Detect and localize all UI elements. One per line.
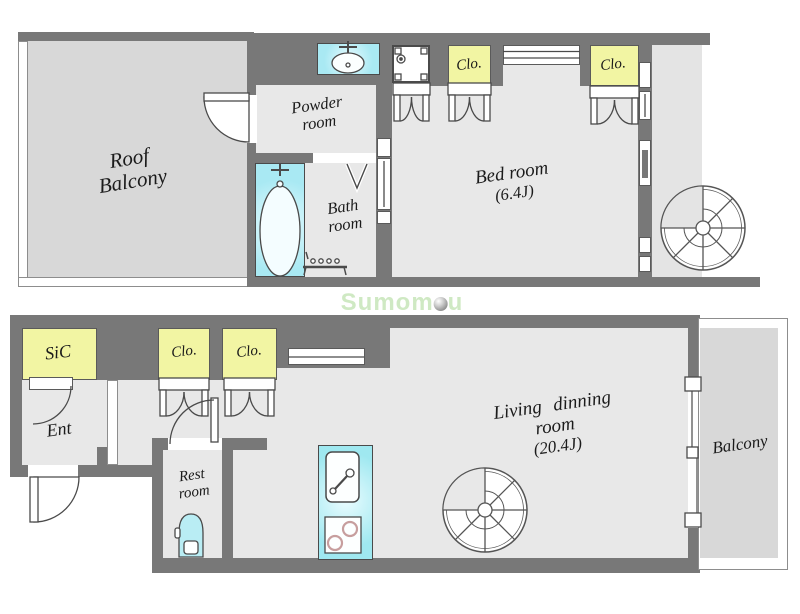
upper-closet-right-text: Clo. <box>599 55 626 74</box>
shoe-closet-label: SiC <box>44 342 72 365</box>
lower-closet-left-label: Clo. <box>170 342 197 361</box>
roof-balcony-door-opening <box>246 95 257 143</box>
lower-closet-divider <box>210 328 222 380</box>
entrance-text: Ent <box>45 417 73 440</box>
lower-bottom-wall <box>152 558 700 573</box>
bathtub-surround <box>255 163 305 277</box>
lower-closet-right-label: Clo. <box>235 342 262 361</box>
entrance-label: Ent <box>45 418 73 441</box>
bed-room-top-window <box>503 45 580 65</box>
roof-balcony-bottom-wall <box>18 277 254 287</box>
mid-wall-window-b <box>377 158 391 210</box>
watermark-suffix: u <box>448 289 464 316</box>
right-wall-window-d <box>639 237 651 253</box>
right-wall-window-a <box>639 62 651 88</box>
upper-corner-block <box>247 45 317 85</box>
mid-wall-window-a <box>377 138 391 157</box>
right-wall-window-e <box>639 256 651 272</box>
watermark-prefix: Sumom <box>341 289 434 316</box>
kitchen-unit <box>318 445 373 560</box>
rest-room-top-wall-b <box>222 438 267 450</box>
sink-lower-strip <box>317 75 380 85</box>
upper-closet-left-text: Clo. <box>455 55 482 74</box>
shoe-closet-text: SiC <box>44 341 72 364</box>
bath-door-opening <box>313 153 376 163</box>
closet-window-divider <box>491 45 503 86</box>
sic-closet-divider <box>97 328 158 380</box>
lower-closet-left-text: Clo. <box>170 342 197 361</box>
powder-sink-counter <box>317 43 380 75</box>
front-door <box>30 477 79 522</box>
shoe-closet-door-panel <box>29 377 73 390</box>
powder-bath-divider <box>255 153 313 163</box>
upper-left-wall-a <box>247 85 256 95</box>
plum-icon <box>434 297 448 311</box>
stair-shaft-floor <box>652 45 702 277</box>
bath-room-label: Bath room <box>325 196 364 237</box>
entrance-bottom-wall-a <box>10 465 28 477</box>
upper-closet-right-label: Clo. <box>599 55 626 74</box>
entrance-floor <box>22 380 152 465</box>
roof-balcony-top-wall <box>18 32 254 41</box>
rest-room-floor <box>163 450 222 558</box>
wm-closet-divider <box>430 45 448 86</box>
rest-room-right-wall <box>222 450 233 573</box>
rest-room-door-opening <box>168 438 222 450</box>
roof-balcony-left-wall <box>18 41 28 287</box>
window-closet-divider <box>580 45 590 86</box>
right-wall-window-b <box>639 91 651 120</box>
rest-room-label: Rest room <box>175 465 210 502</box>
floor-plan: Roof Balcony Powder room Bath room Bed r… <box>0 0 800 614</box>
upper-closet-left-label: Clo. <box>455 55 482 74</box>
mid-wall-window-c <box>377 211 391 224</box>
hall-wall-window <box>288 348 365 365</box>
rest-room-left-wall <box>152 438 163 573</box>
front-door-opening <box>28 465 78 477</box>
right-wall-window-c-sash <box>642 150 648 178</box>
washing-machine-pan <box>392 45 430 83</box>
entrance-bottom-wall-b <box>78 465 163 477</box>
entrance-step <box>107 380 118 465</box>
powder-room-label: Powder room <box>290 92 346 135</box>
site-watermark: Sumomu <box>341 289 464 317</box>
upper-bottom-wall <box>247 277 760 287</box>
lower-closet-right-text: Clo. <box>235 342 262 361</box>
lower-left-wall <box>10 315 22 477</box>
